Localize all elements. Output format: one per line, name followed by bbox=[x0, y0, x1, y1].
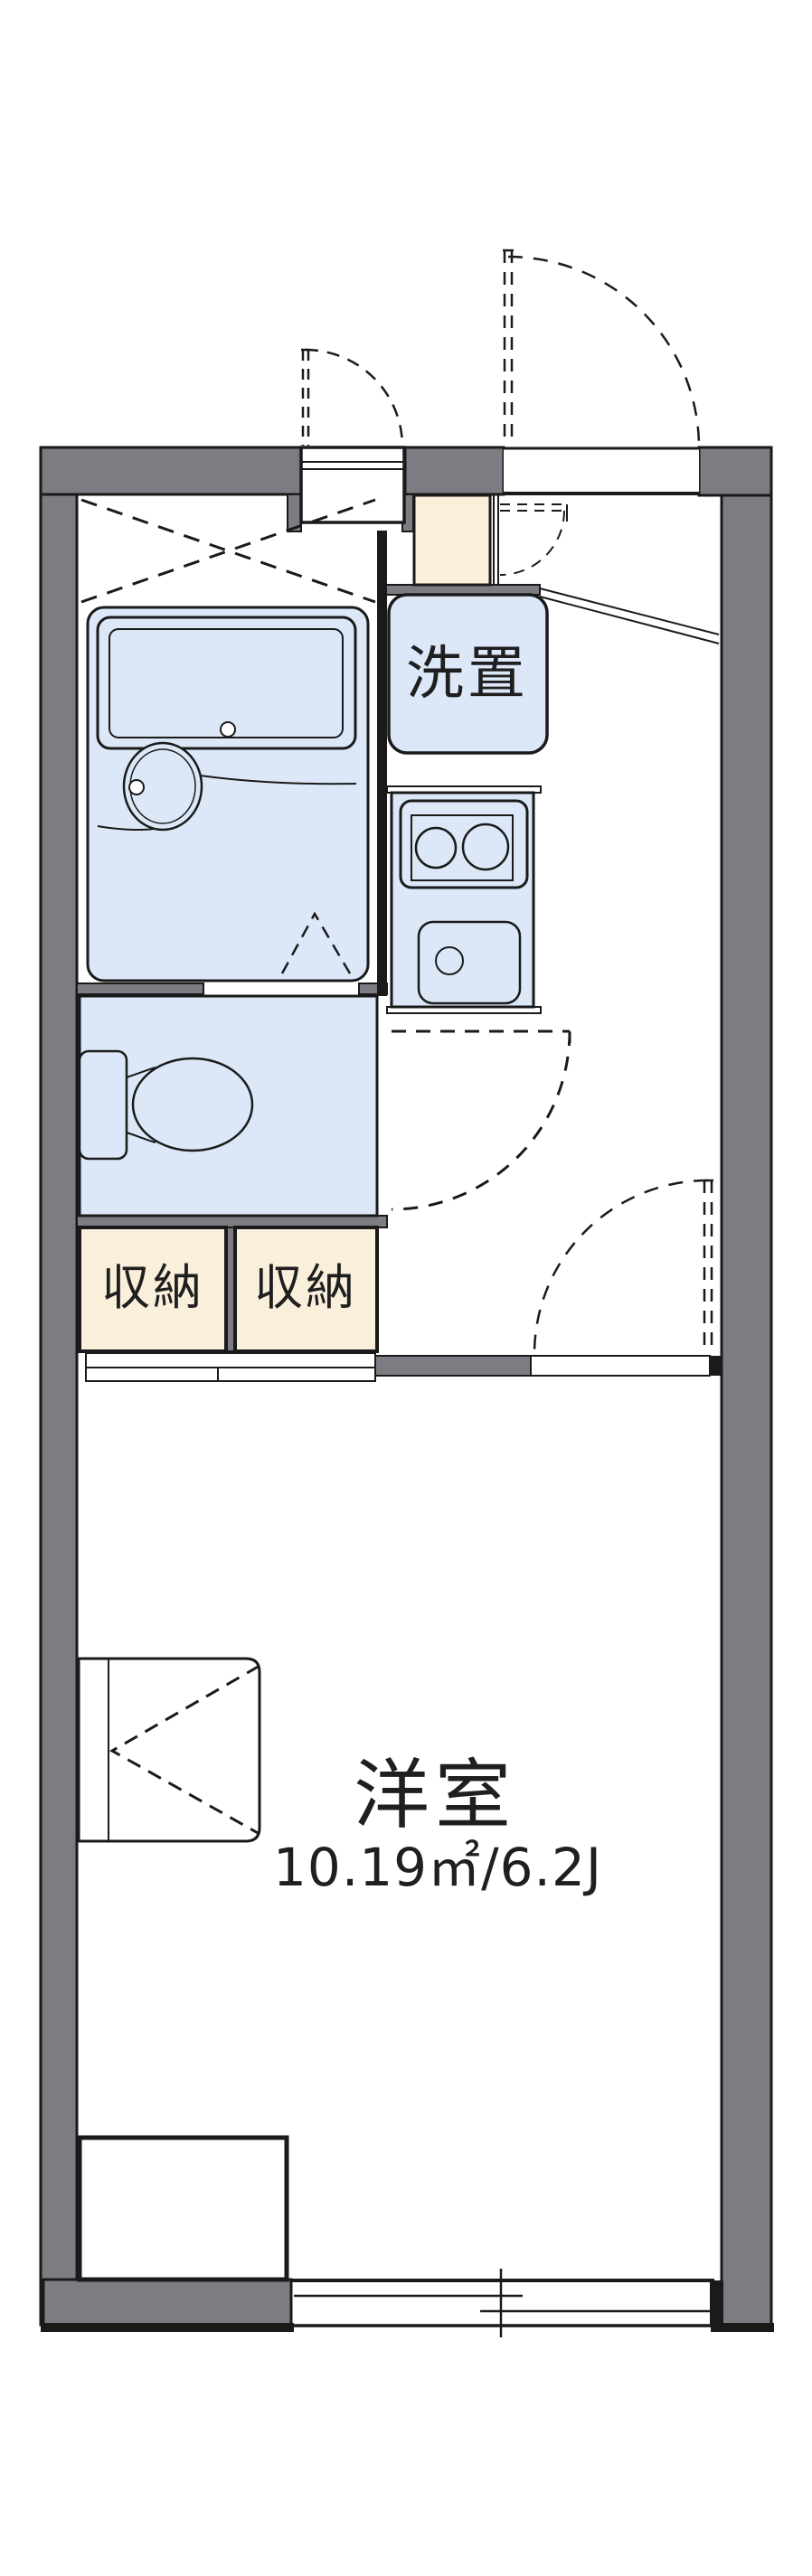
toilet-tank bbox=[80, 1051, 127, 1159]
wall-left bbox=[41, 447, 77, 2325]
window-south bbox=[291, 2269, 714, 2337]
entrance-door-arc bbox=[508, 257, 699, 447]
storage-left-label: 収納 bbox=[101, 1264, 204, 1312]
entry-cream-cabinet bbox=[414, 495, 490, 585]
wall-right bbox=[722, 495, 771, 2325]
wall-partition-bath-kitchen bbox=[377, 531, 387, 996]
sink-drain bbox=[436, 947, 463, 974]
counter-diagonal-1 bbox=[540, 588, 719, 635]
bathroom bbox=[81, 500, 375, 981]
room-door-arc bbox=[534, 1180, 708, 1354]
western-room-label: 洋室 bbox=[354, 1757, 516, 1833]
entry-step-recess bbox=[301, 447, 404, 522]
western-room-fixtures bbox=[79, 1659, 287, 2280]
toilet-bowl bbox=[133, 1058, 252, 1151]
corner-cabinet-box bbox=[80, 2138, 287, 2280]
wall-hall-bottom bbox=[373, 1356, 531, 1376]
room-door-opening bbox=[531, 1356, 710, 1376]
entrance-opening bbox=[504, 449, 699, 492]
western-room-area-label: 10.19㎡/6.2J bbox=[273, 1841, 602, 1894]
wall-top-mid bbox=[405, 447, 504, 494]
laundry-label: 洗置 bbox=[406, 645, 529, 703]
counter-diagonal-2 bbox=[540, 597, 719, 644]
stove-burner-right bbox=[463, 824, 508, 870]
desk-counter bbox=[79, 1659, 260, 1841]
hall-door-arc bbox=[392, 1031, 570, 1209]
floorplan-canvas: 洗置 収納 収納 洋室 10.19㎡/6.2J bbox=[0, 0, 812, 2576]
wall-bottom-left bbox=[43, 2280, 291, 2325]
toilet-room bbox=[80, 996, 377, 1216]
storage-right-label: 収納 bbox=[254, 1264, 357, 1312]
wash-basin-drain bbox=[129, 780, 144, 794]
service-door-arc bbox=[306, 350, 402, 447]
wall-top-left bbox=[41, 447, 301, 494]
stove-burner-left bbox=[416, 828, 456, 868]
entry-kitchen-zone bbox=[387, 495, 719, 1013]
kitchen-sink bbox=[419, 922, 520, 1003]
wall-bath-toilet-a bbox=[77, 983, 203, 994]
laundry-door-arc bbox=[500, 511, 564, 575]
wall-top-right-corner bbox=[699, 447, 771, 495]
wall-bottom-cap-left bbox=[41, 2323, 294, 2332]
window-end-step bbox=[710, 2280, 723, 2325]
bathtub-drain bbox=[221, 722, 235, 737]
wall-room-door-stub bbox=[710, 1356, 722, 1376]
